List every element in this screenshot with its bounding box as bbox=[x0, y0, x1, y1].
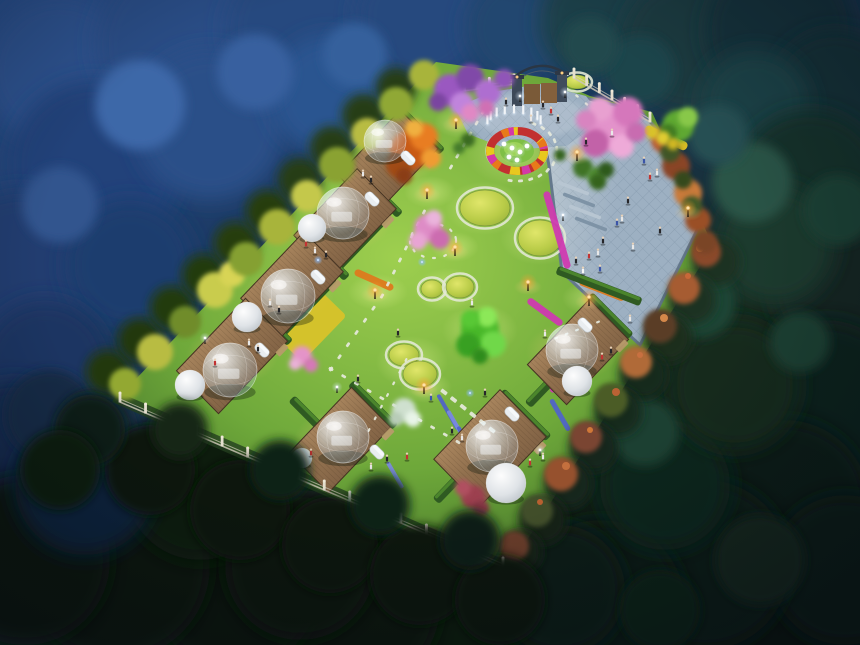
glamping-garden-render bbox=[0, 0, 860, 645]
vignette bbox=[0, 0, 860, 645]
aerial-render-stage bbox=[0, 0, 860, 645]
